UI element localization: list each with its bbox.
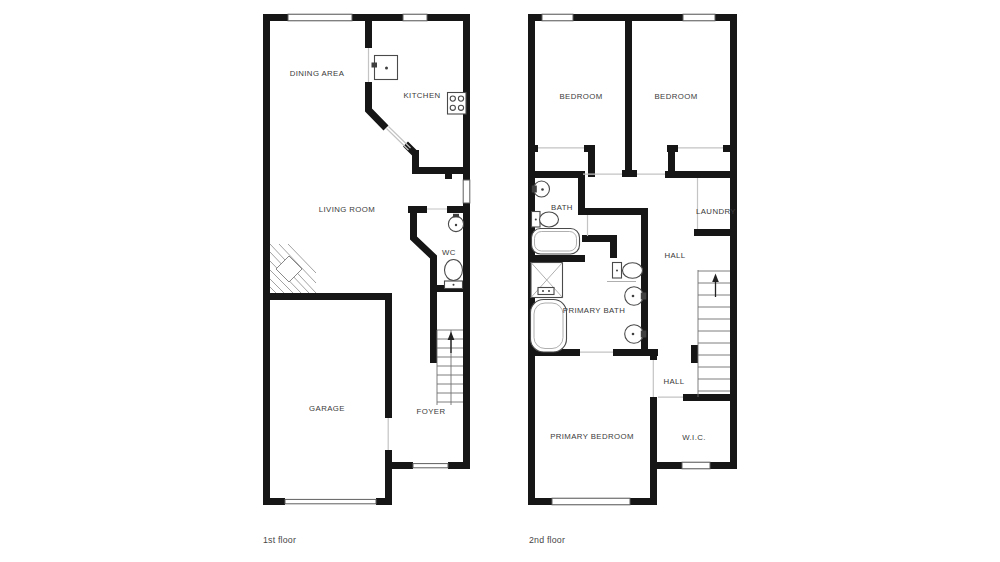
room-label-wic: W.I.C. — [682, 433, 706, 442]
room-label-bedroom-1: BEDROOM — [559, 92, 602, 101]
room-label-living-room: LIVING ROOM — [319, 205, 375, 214]
winder-stairs-icon — [270, 244, 316, 293]
wc-sink-icon — [448, 214, 463, 232]
floor-plan-canvas: DINING AREA KITCHEN LIVING ROOM WC GARAG… — [0, 0, 1000, 562]
room-label-foyer: FOYER — [417, 407, 446, 416]
first-floor-room-labels: DINING AREA KITCHEN LIVING ROOM WC GARAG… — [290, 69, 456, 416]
bathtub-icon — [532, 229, 580, 255]
first-floor-plan: DINING AREA KITCHEN LIVING ROOM WC GARAG… — [263, 14, 470, 545]
second-floor-caption: 2nd floor — [529, 535, 565, 545]
stove-icon — [448, 93, 467, 115]
shower-icon — [531, 263, 563, 298]
first-floor-caption: 1st floor — [263, 535, 296, 545]
second-floor-plan: BEDROOM BEDROOM BATH LAUNDRY HALL PRIMAR… — [528, 14, 737, 545]
window-symbol — [682, 462, 710, 469]
room-label-laundry: LAUNDRY — [696, 207, 736, 216]
window-symbol — [288, 14, 352, 21]
window-symbol — [463, 180, 470, 203]
room-label-dining-area: DINING AREA — [290, 69, 345, 78]
staircase-up-icon — [437, 330, 463, 405]
floor-plan-drawing: DINING AREA KITCHEN LIVING ROOM WC GARAG… — [0, 0, 1000, 562]
room-label-garage: GARAGE — [309, 404, 345, 413]
staircase-up-icon — [698, 270, 730, 397]
front-door-opening — [413, 464, 448, 468]
window-symbol — [552, 498, 630, 505]
room-label-kitchen: KITCHEN — [403, 91, 440, 100]
room-label-wc: WC — [442, 248, 456, 257]
room-label-bath: BATH — [551, 203, 573, 212]
wc-toilet-icon — [445, 260, 463, 289]
bath-toilet-icon — [532, 212, 559, 228]
room-label-primary-bedroom: PRIMARY BEDROOM — [550, 432, 634, 441]
window-symbol — [403, 14, 427, 21]
window-symbol — [683, 14, 715, 21]
window-symbol — [542, 14, 573, 21]
room-label-primary-bath: PRIMARY BATH — [563, 306, 625, 315]
kitchen-sink-icon — [372, 56, 398, 80]
freestanding-tub-icon — [531, 300, 567, 353]
primary-toilet-icon — [607, 263, 643, 282]
room-label-bedroom-2: BEDROOM — [654, 92, 697, 101]
door-opening — [369, 48, 448, 450]
room-label-hall-upper: HALL — [664, 251, 685, 260]
room-label-hall-lower: HALL — [663, 377, 684, 386]
garage-door — [285, 499, 376, 503]
